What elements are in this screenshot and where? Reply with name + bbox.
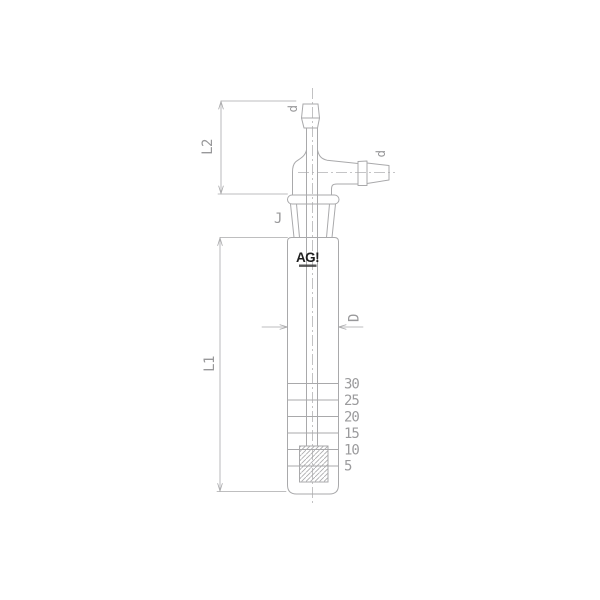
side-port-d-label: d (373, 150, 388, 157)
graduation-label-5: 5 (344, 459, 352, 475)
arm-bottom-fillet (332, 184, 359, 195)
graduation-labels: 30 25 20 15 10 5 (344, 377, 359, 475)
flange-rim (288, 195, 340, 204)
graduation-label-15: 15 (344, 426, 359, 442)
logo-text: AG! (296, 250, 319, 265)
top-hose-connector (302, 104, 320, 128)
top-port-d-label: d (285, 105, 300, 112)
top-barb-band (302, 118, 320, 128)
glassware-technical-drawing: 30 25 20 15 10 5 L2 L1 D d d J AG! (0, 0, 600, 600)
top-barb-cone (302, 104, 320, 118)
inner-tube (307, 128, 318, 446)
logo: AG! (296, 250, 319, 267)
side-hose-connector (358, 161, 389, 186)
joint-outer-left (291, 204, 295, 238)
filter-frit (300, 446, 329, 482)
l1-label: L1 (202, 356, 218, 372)
logo-subtext (299, 265, 317, 267)
l2-label: L2 (200, 139, 216, 155)
graduation-label-25: 25 (344, 393, 359, 409)
joint-j-label: J (274, 211, 282, 227)
shoulder-right-arm-top (318, 150, 359, 164)
joint-inner-right (327, 204, 330, 238)
graduation-label-30: 30 (344, 377, 359, 393)
dimension-l1: L1 (202, 238, 288, 492)
joint-flange (288, 195, 340, 204)
graduation-label-20: 20 (344, 410, 359, 426)
side-collar (358, 161, 367, 186)
dimension-l2: L2 (200, 101, 296, 194)
joint-outer-right (332, 204, 336, 238)
joint-inner-left (297, 204, 300, 238)
ground-joint (291, 204, 336, 238)
d-body-label: D (347, 314, 363, 322)
frit-hatched-block (300, 446, 329, 482)
product-diagram-canvas: 30 25 20 15 10 5 L2 L1 D d d J AG! (0, 0, 600, 600)
graduation-label-10: 10 (344, 443, 359, 459)
side-barb-cone (367, 163, 389, 184)
